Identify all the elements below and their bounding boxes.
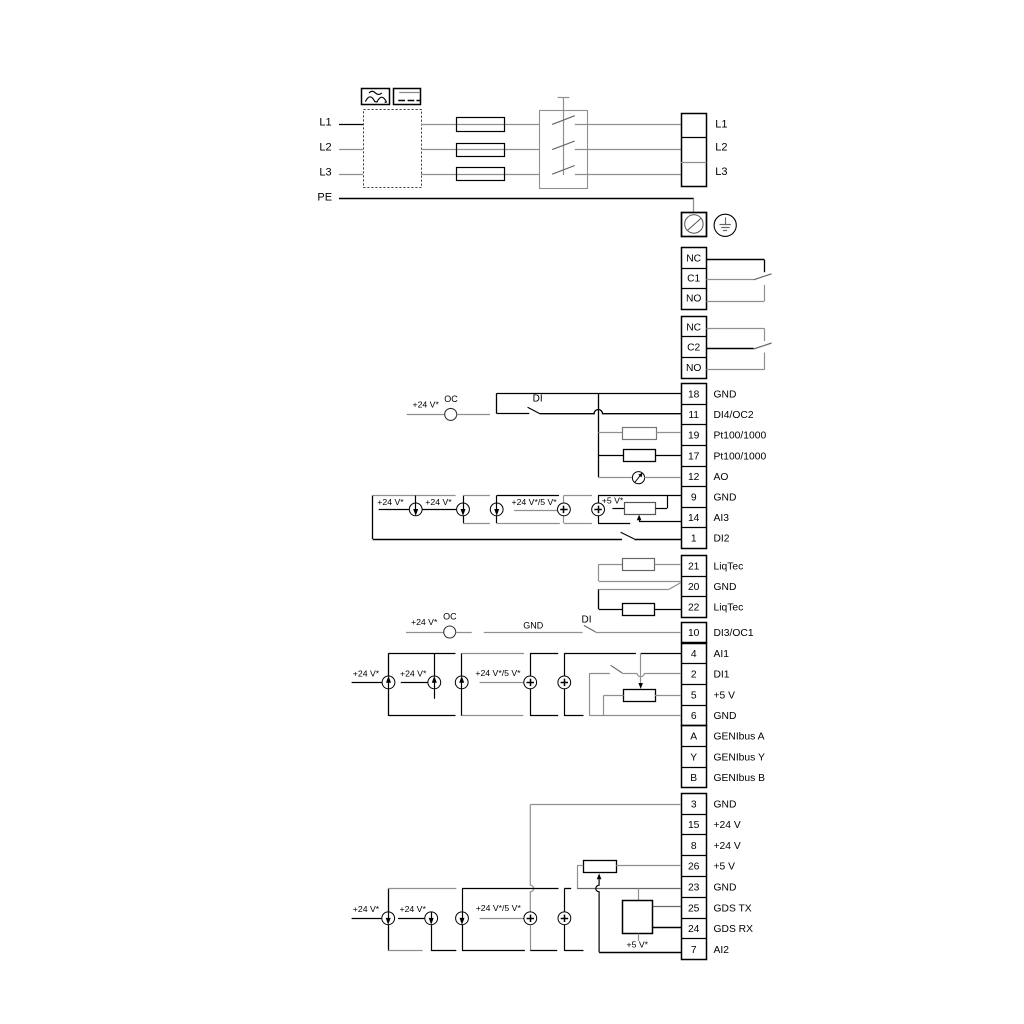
svg-text:C2: C2 [687,343,700,354]
svg-text:11: 11 [688,410,699,421]
svg-text:GND: GND [523,620,544,630]
svg-text:17: 17 [688,451,700,462]
svg-text:23: 23 [688,883,700,894]
svg-text:4: 4 [691,649,697,660]
svg-text:AO: AO [714,472,729,483]
svg-text:+5 V: +5 V [714,690,736,701]
svg-text:B: B [690,773,697,784]
svg-text:+24 V*: +24 V* [377,497,404,507]
svg-text:GND: GND [714,390,737,401]
svg-text:GDS TX: GDS TX [714,903,752,914]
svg-text:L1: L1 [319,116,331,128]
svg-text:OC: OC [443,611,457,621]
svg-text:L2: L2 [715,142,727,154]
svg-text:+24 V*/5 V*: +24 V*/5 V* [512,497,558,507]
svg-text:PE: PE [317,192,332,204]
svg-text:DI: DI [582,614,592,625]
svg-text:L2: L2 [319,142,331,154]
svg-text:9: 9 [691,493,697,504]
svg-text:LiqTec: LiqTec [714,603,744,614]
svg-text:+24 V*: +24 V* [413,400,440,410]
svg-text:+5 V*: +5 V* [602,495,624,505]
svg-text:7: 7 [691,945,697,956]
svg-text:AI2: AI2 [714,945,730,956]
svg-text:GND: GND [714,799,737,810]
svg-text:22: 22 [688,603,700,614]
svg-text:12: 12 [688,472,700,483]
svg-text:GDS RX: GDS RX [714,924,754,935]
svg-text:L3: L3 [715,166,727,178]
svg-text:10: 10 [688,628,700,639]
svg-text:C1: C1 [687,273,700,284]
svg-text:20: 20 [688,582,700,593]
svg-text:AI3: AI3 [714,513,730,524]
svg-text:+24 V*: +24 V* [400,668,427,678]
svg-text:GENIbus Y: GENIbus Y [714,752,765,763]
svg-text:+24 V*: +24 V* [353,904,380,914]
svg-text:AI1: AI1 [714,649,730,660]
svg-text:A: A [690,732,697,743]
svg-text:L3: L3 [319,167,331,179]
svg-text:DI2: DI2 [714,534,730,545]
svg-text:24: 24 [688,924,700,935]
svg-text:OC: OC [444,394,458,404]
svg-text:14: 14 [688,513,700,524]
svg-text:19: 19 [688,431,700,442]
svg-text:DI3/OC1: DI3/OC1 [714,628,754,639]
svg-text:3: 3 [691,799,697,810]
svg-text:NO: NO [686,294,701,305]
svg-text:DI4/OC2: DI4/OC2 [714,410,754,421]
svg-text:6: 6 [691,711,697,722]
svg-text:L1: L1 [715,118,727,130]
svg-text:Pt100/1000: Pt100/1000 [714,451,767,462]
svg-text:25: 25 [688,903,700,914]
svg-text:2: 2 [691,670,697,681]
svg-text:21: 21 [688,561,700,572]
svg-text:+24 V: +24 V [714,820,741,831]
svg-text:+5 V*: +5 V* [627,940,649,950]
svg-text:Y: Y [690,752,697,763]
svg-text:1: 1 [691,534,697,545]
svg-text:GND: GND [714,493,737,504]
svg-text:GND: GND [714,883,737,894]
svg-text:GENIbus B: GENIbus B [714,773,766,784]
svg-text:NC: NC [686,322,701,333]
svg-text:LiqTec: LiqTec [714,561,744,572]
svg-text:+24 V*: +24 V* [353,668,380,678]
svg-text:18: 18 [688,390,700,401]
svg-text:+24 V: +24 V [714,841,741,852]
svg-text:15: 15 [688,820,700,831]
svg-text:8: 8 [691,841,697,852]
svg-text:DI1: DI1 [714,670,730,681]
svg-text:+24 V*: +24 V* [400,904,427,914]
svg-text:NO: NO [686,363,701,374]
svg-text:+24 V*/5 V*: +24 V*/5 V* [476,903,522,913]
svg-text:NC: NC [686,253,701,264]
svg-text:+24 V*: +24 V* [411,617,438,627]
svg-text:26: 26 [688,862,700,873]
svg-text:+24 V*: +24 V* [425,497,452,507]
svg-text:5: 5 [691,690,697,701]
svg-text:GENIbus A: GENIbus A [714,732,765,743]
svg-text:GND: GND [714,582,737,593]
svg-text:GND: GND [714,711,737,722]
svg-text:+24 V*/5 V*: +24 V*/5 V* [475,668,521,678]
svg-text:+5 V: +5 V [714,862,736,873]
svg-text:Pt100/1000: Pt100/1000 [714,431,767,442]
svg-text:DI: DI [533,394,543,405]
